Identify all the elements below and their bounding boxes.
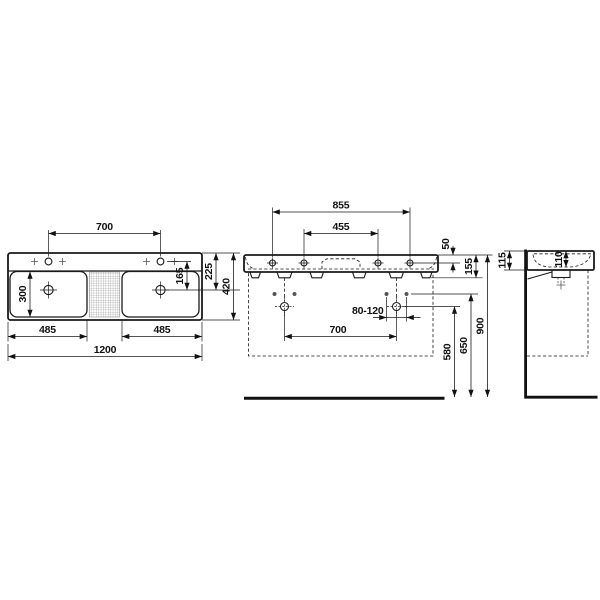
- dim-drain-offset: 80-120: [352, 297, 421, 322]
- dim-label-115: 115: [497, 252, 509, 269]
- dim-label-225: 225: [203, 263, 215, 280]
- dim-label-165: 165: [174, 267, 186, 284]
- fixing-drop-lines: [285, 278, 397, 301]
- dim-label-700-front: 700: [330, 324, 347, 336]
- dim-tap-hole-spacing: 700: [49, 221, 161, 257]
- wall-and-floor: [526, 250, 598, 398]
- dim-label-300: 300: [17, 285, 29, 302]
- dim-label-650: 650: [458, 337, 470, 354]
- technical-drawing-canvas: 700 300 165 225 420 485: [0, 0, 600, 600]
- dim-label-1200: 1200: [94, 344, 117, 356]
- dim-label-580: 580: [442, 343, 454, 360]
- front-view: 855 455 50 155 80-120: [244, 200, 493, 399]
- center-shelf-hatch: [90, 272, 120, 317]
- plan-view: 700 300 165 225 420 485: [8, 221, 240, 361]
- dim-body-height: 155: [463, 255, 476, 278]
- supply-points: [273, 292, 409, 296]
- dim-label-455: 455: [333, 221, 350, 233]
- dim-inner-bowl-depth: 110: [553, 251, 566, 268]
- dim-height-at-wall: 115: [497, 251, 528, 270]
- dim-supply-height: 650: [458, 294, 471, 397]
- dim-rim-height: 900: [475, 255, 488, 397]
- dim-left-bowl-width: 485: [8, 320, 87, 342]
- extension-lines-right: [403, 255, 493, 307]
- side-view: 115 110: [497, 250, 598, 398]
- basin-outline-front: [244, 255, 438, 272]
- drawing-svg: 700 300 165 225 420 485: [0, 0, 600, 600]
- dim-label-110: 110: [553, 251, 565, 268]
- installation-zone-dashed: [249, 273, 434, 356]
- dim-inner-holes: 455: [304, 221, 378, 257]
- drain-trap-side: [528, 270, 571, 290]
- dim-label-700-plan: 700: [96, 221, 113, 233]
- dim-label-485-left: 485: [39, 324, 56, 336]
- dim-label-485-right: 485: [154, 324, 171, 336]
- dim-label-80-120: 80-120: [352, 305, 384, 317]
- dim-label-855: 855: [333, 200, 350, 212]
- dim-label-155: 155: [463, 258, 475, 275]
- dim-label-900: 900: [475, 317, 487, 334]
- clearance-zone-dashed: [527, 270, 588, 356]
- dim-fixing-height: 580: [442, 307, 455, 398]
- dim-right-bowl-width: 485: [122, 320, 202, 342]
- dim-label-420: 420: [221, 278, 233, 295]
- dim-label-50: 50: [440, 238, 452, 250]
- dim-overall-width: 1200: [8, 344, 202, 361]
